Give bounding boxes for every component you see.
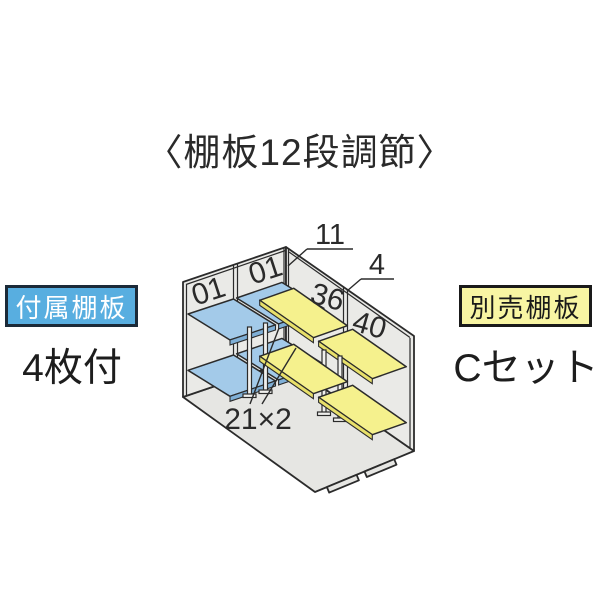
dimension-number: 4 xyxy=(369,249,385,281)
product-diagram-page: 〈棚板12段調節〉 付属棚板 4枚付 別売棚板 Cセット xyxy=(0,0,600,600)
shed-isometric-diagram: 01 01 36 40 11 4 21×2 xyxy=(0,0,600,600)
dimension-number: 11 xyxy=(315,219,345,251)
dimension-leader-side: 4 xyxy=(347,249,394,291)
floor-note-number: 21×2 xyxy=(224,403,292,436)
